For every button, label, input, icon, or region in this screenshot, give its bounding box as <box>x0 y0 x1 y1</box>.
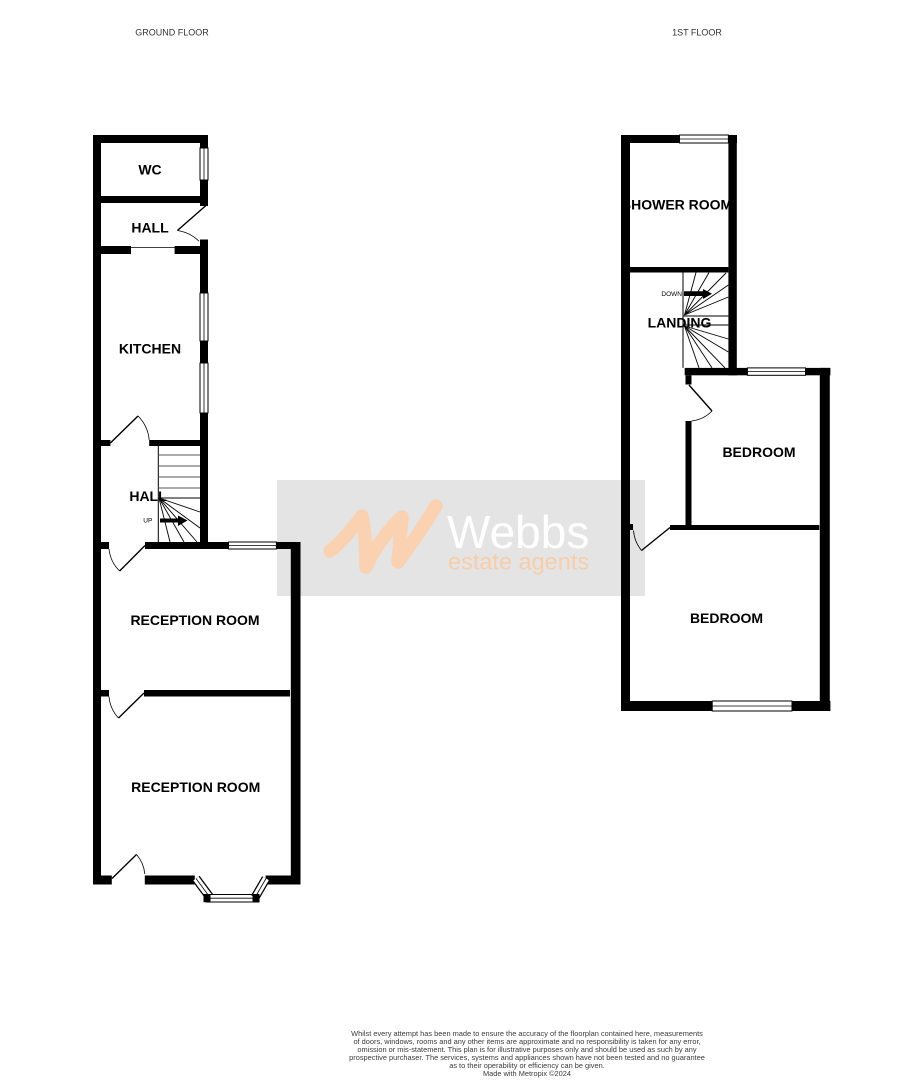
svg-text:KITCHEN: KITCHEN <box>119 341 181 357</box>
svg-text:RECEPTION ROOM: RECEPTION ROOM <box>130 612 259 628</box>
svg-text:DOWN: DOWN <box>661 291 682 298</box>
svg-text:RECEPTION ROOM: RECEPTION ROOM <box>131 779 260 795</box>
svg-text:GROUND FLOOR: GROUND FLOOR <box>135 28 209 38</box>
svg-text:LANDING: LANDING <box>648 314 712 330</box>
svg-text:SHOWER ROOM: SHOWER ROOM <box>622 196 732 212</box>
svg-text:UP: UP <box>143 518 152 525</box>
svg-text:1ST FLOOR: 1ST FLOOR <box>672 28 722 38</box>
svg-text:Made with Metropix ©2024: Made with Metropix ©2024 <box>483 1069 571 1078</box>
svg-text:WC: WC <box>138 161 161 177</box>
svg-text:HALL: HALL <box>131 219 169 235</box>
svg-text:BEDROOM: BEDROOM <box>722 444 795 460</box>
svg-text:BEDROOM: BEDROOM <box>690 610 763 626</box>
svg-text:HALL: HALL <box>129 488 167 504</box>
svg-text:estate agents: estate agents <box>448 549 589 575</box>
